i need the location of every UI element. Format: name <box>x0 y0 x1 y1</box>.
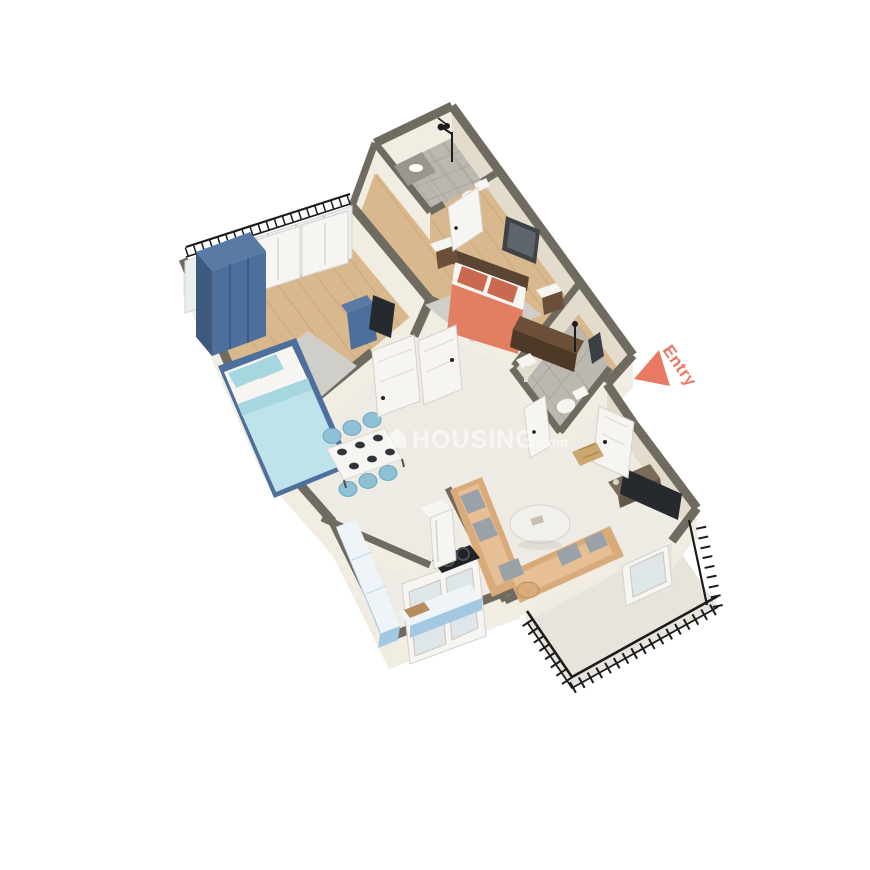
sink-basin <box>409 164 423 172</box>
entry-label-group: Entry <box>634 341 701 390</box>
wardrobe <box>196 232 266 356</box>
floorplan-canvas: Entry HOUSING.com <box>0 0 870 870</box>
floorplan-3d-render: Entry HOUSING.com <box>0 0 870 870</box>
side-table <box>517 582 539 598</box>
door-knob <box>603 440 607 444</box>
console-decor <box>613 479 619 485</box>
